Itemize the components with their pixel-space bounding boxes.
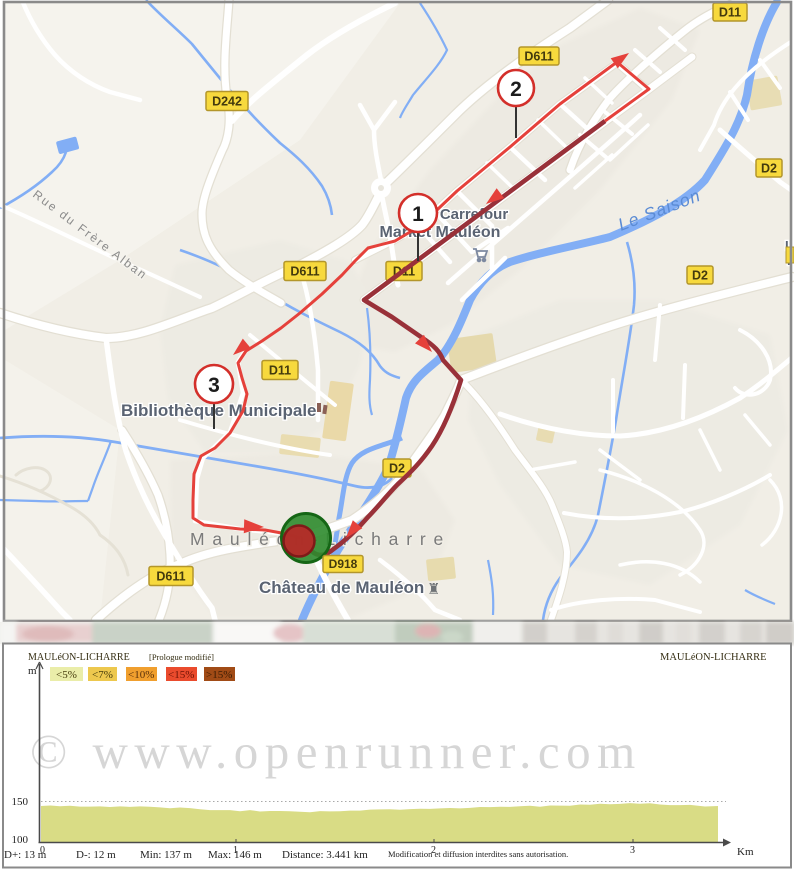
svg-text:m: m [28, 665, 37, 677]
svg-text:D-: 12 m: D-: 12 m [76, 849, 116, 861]
svg-text:100: 100 [12, 834, 29, 846]
svg-text:© www.openrunner.com: © www.openrunner.com [30, 724, 642, 779]
svg-text:D11: D11 [719, 6, 741, 20]
svg-text:Modification et diffusion inte: Modification et diffusion interdites san… [388, 849, 568, 859]
svg-text:D918: D918 [329, 557, 358, 571]
svg-text:MAULéON-LICHARRE: MAULéON-LICHARRE [660, 652, 767, 663]
svg-text:D611: D611 [524, 50, 553, 64]
svg-text:Château de Mauléon: Château de Mauléon [259, 578, 424, 597]
svg-text:D2: D2 [692, 269, 708, 283]
svg-text:D2: D2 [761, 162, 777, 176]
svg-text:D611: D611 [156, 570, 185, 584]
svg-text:D611: D611 [290, 265, 319, 279]
svg-text:[Prologue modifié]: [Prologue modifié] [149, 652, 214, 662]
svg-text:2: 2 [510, 78, 522, 101]
svg-text:Distance: 3.441 km: Distance: 3.441 km [282, 849, 368, 861]
svg-text:3: 3 [208, 374, 220, 397]
svg-text:♜: ♜ [427, 581, 440, 598]
svg-text:D11: D11 [269, 364, 291, 378]
svg-text:D+: 13 m: D+: 13 m [4, 849, 47, 861]
svg-text:<5%: <5% [56, 669, 77, 681]
svg-text:>15%: >15% [206, 669, 232, 681]
svg-text:Min: 137 m: Min: 137 m [140, 849, 192, 861]
svg-text:D242: D242 [212, 95, 242, 109]
svg-text:D2: D2 [389, 462, 405, 476]
svg-text:Km: Km [737, 846, 754, 858]
svg-text:Bibliothèque Municipale: Bibliothèque Municipale [121, 401, 317, 420]
svg-text:150: 150 [12, 796, 29, 808]
svg-text:<15%: <15% [168, 669, 194, 681]
svg-text:<7%: <7% [92, 669, 113, 681]
svg-text:1: 1 [412, 203, 424, 226]
svg-text:Max: 146 m: Max: 146 m [208, 849, 262, 861]
svg-text:3: 3 [630, 845, 635, 856]
svg-text:MAULéON-LICHARRE: MAULéON-LICHARRE [28, 652, 130, 663]
svg-text:<10%: <10% [128, 669, 154, 681]
